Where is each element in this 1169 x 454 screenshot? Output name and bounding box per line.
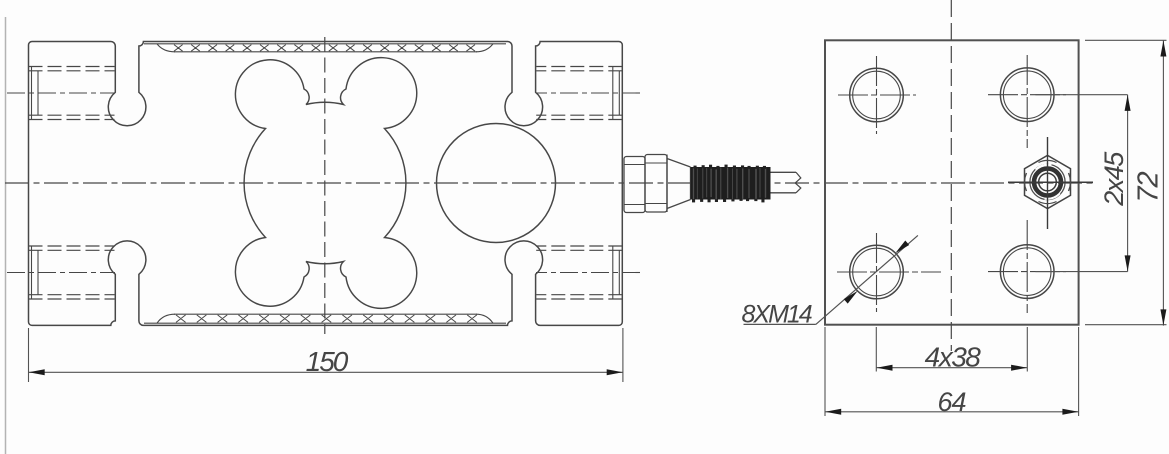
svg-text:4x38: 4x38: [925, 342, 982, 373]
svg-text:2x45: 2x45: [1099, 151, 1129, 207]
svg-text:72: 72: [1133, 172, 1165, 203]
svg-text:150: 150: [306, 346, 349, 377]
svg-text:64: 64: [937, 387, 965, 417]
